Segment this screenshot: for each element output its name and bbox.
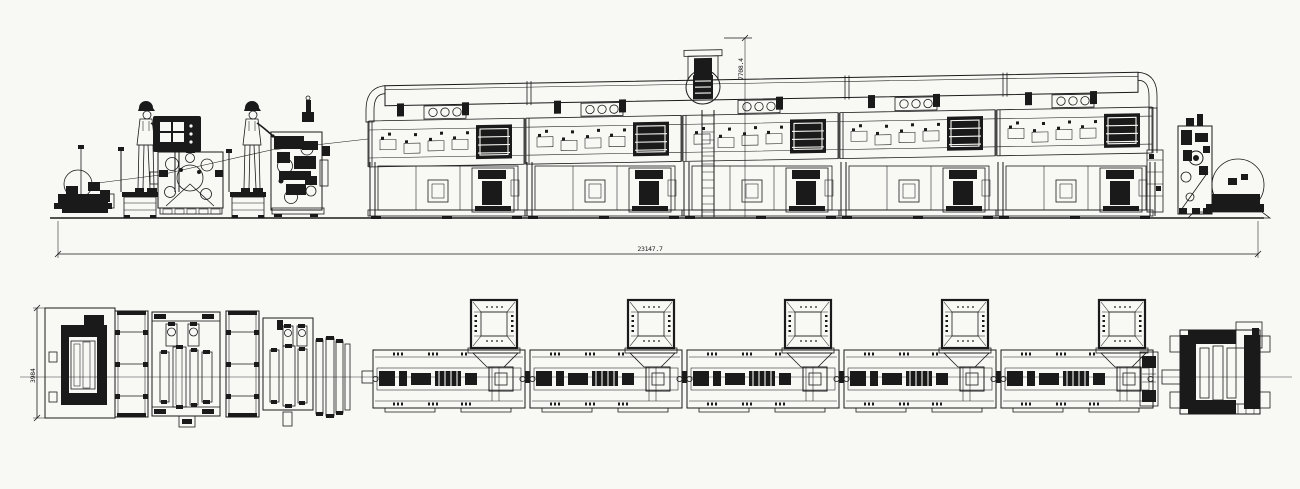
machine-height-label: 7708.4 [737, 58, 745, 80]
overall-length-label: 23147.7 [637, 245, 663, 253]
handrail-knob-2 [226, 149, 232, 153]
handrail-knob-1 [118, 147, 124, 151]
drawing-svg: 23147.7 7708.4 [0, 0, 1300, 489]
machine-width-label: 3984 [29, 368, 37, 383]
cad-drawing-canvas: 23147.7 7708.4 [0, 0, 1300, 489]
